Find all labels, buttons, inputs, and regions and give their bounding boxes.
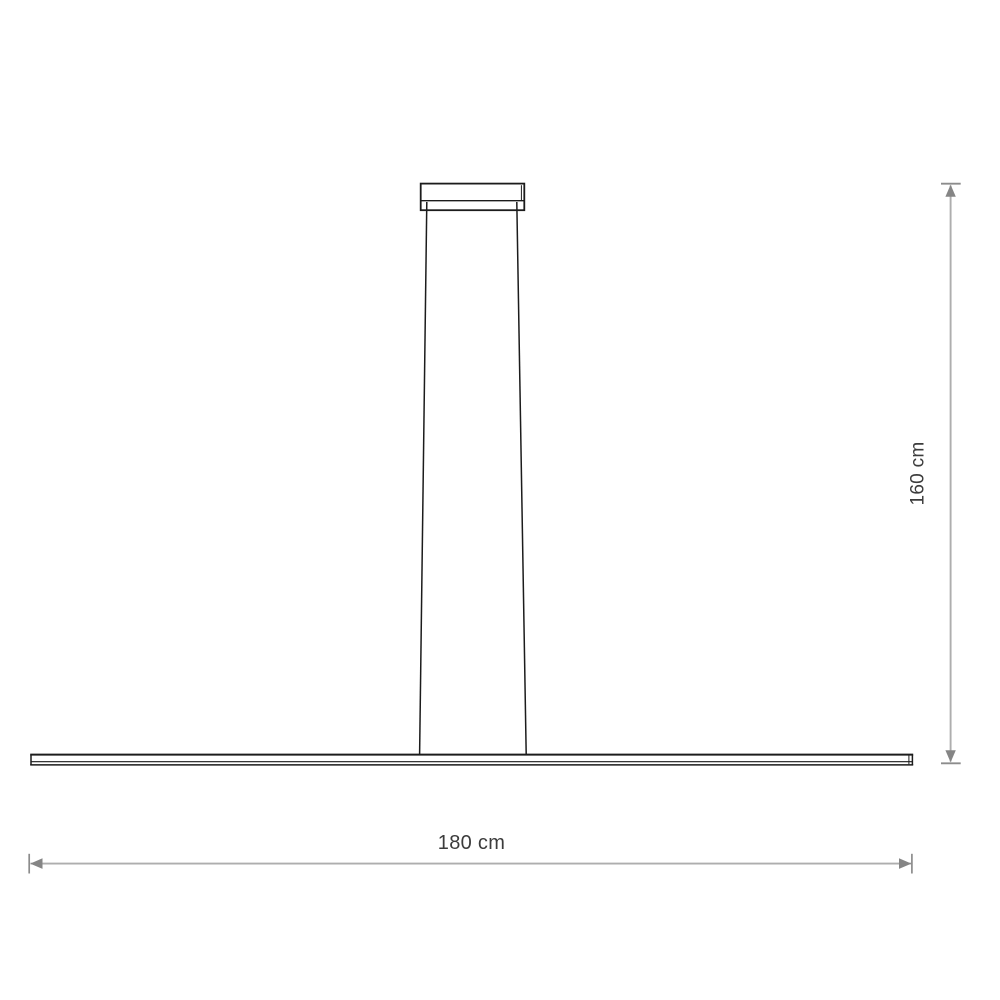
height-dimension-label: 160 cm — [907, 441, 928, 505]
arrow-up-icon — [945, 185, 955, 197]
pendant-lamp — [30, 184, 913, 765]
arrow-left-icon — [30, 858, 42, 869]
suspension-cable-left — [420, 202, 427, 755]
height-dimension: 160 cm — [907, 184, 960, 764]
arrow-down-icon — [945, 750, 955, 762]
width-dimension-label: 180 cm — [438, 832, 505, 854]
suspension-cable-right — [517, 202, 526, 755]
ceiling-canopy — [421, 184, 525, 211]
width-dimension: 180 cm — [29, 832, 912, 874]
pendant-lamp-dimension-drawing: 160 cm 180 cm — [0, 0, 1000, 1000]
dimension-drawing-page: 160 cm 180 cm — [0, 0, 1000, 1000]
arrow-right-icon — [899, 858, 911, 869]
